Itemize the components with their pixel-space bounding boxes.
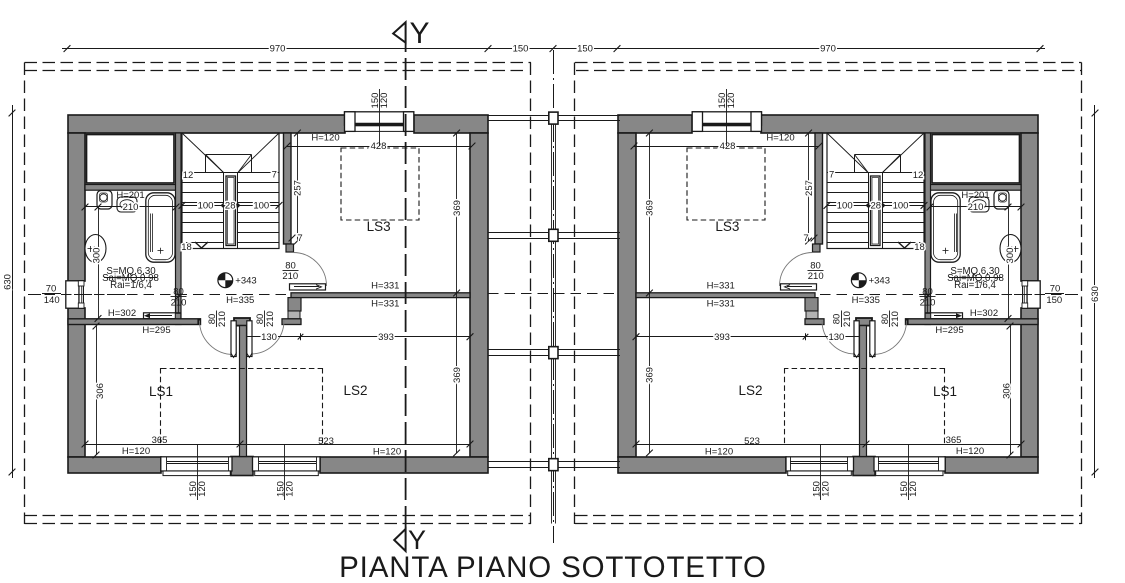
svg-text:80: 80 xyxy=(810,261,821,272)
svg-text:H=295: H=295 xyxy=(935,325,963,336)
svg-text:130: 130 xyxy=(261,332,277,343)
svg-text:523: 523 xyxy=(744,436,760,447)
svg-text:LS3: LS3 xyxy=(715,219,739,234)
svg-text:H=335: H=335 xyxy=(226,295,254,306)
svg-text:365: 365 xyxy=(946,435,962,446)
svg-text:H=331: H=331 xyxy=(371,281,399,292)
svg-text:210: 210 xyxy=(968,202,984,213)
svg-text:120: 120 xyxy=(726,93,737,109)
svg-text:393: 393 xyxy=(378,332,394,343)
svg-text:H=302: H=302 xyxy=(970,308,998,319)
svg-text:210: 210 xyxy=(217,311,228,327)
svg-text:+343: +343 xyxy=(869,275,890,286)
svg-text:120: 120 xyxy=(197,481,208,497)
svg-text:H=120: H=120 xyxy=(956,446,984,457)
svg-text:H=331: H=331 xyxy=(707,281,735,292)
svg-text:7: 7 xyxy=(297,233,302,244)
svg-text:369: 369 xyxy=(452,367,463,383)
svg-text:H=201: H=201 xyxy=(116,190,144,201)
svg-text:428: 428 xyxy=(371,141,387,152)
svg-text:7: 7 xyxy=(803,233,808,244)
svg-text:369: 369 xyxy=(645,200,656,216)
svg-text:100: 100 xyxy=(893,201,909,212)
svg-text:28: 28 xyxy=(871,201,882,212)
svg-text:H=331: H=331 xyxy=(371,299,399,310)
svg-text:H=302: H=302 xyxy=(108,308,136,319)
svg-text:100: 100 xyxy=(837,201,853,212)
svg-text:630: 630 xyxy=(1090,286,1101,302)
svg-text:H=335: H=335 xyxy=(852,295,880,306)
svg-text:70: 70 xyxy=(1050,284,1061,295)
svg-text:+343: +343 xyxy=(235,275,256,286)
svg-text:300: 300 xyxy=(91,248,102,264)
svg-text:80: 80 xyxy=(285,261,296,272)
svg-text:306: 306 xyxy=(1002,383,1013,399)
svg-text:H=331: H=331 xyxy=(707,299,735,310)
svg-text:393: 393 xyxy=(714,332,730,343)
svg-text:428: 428 xyxy=(720,141,736,152)
svg-text:LS2: LS2 xyxy=(738,383,762,398)
svg-text:210: 210 xyxy=(808,271,824,282)
svg-text:257: 257 xyxy=(804,180,815,196)
svg-text:369: 369 xyxy=(645,367,656,383)
svg-text:7: 7 xyxy=(272,169,277,180)
svg-text:12: 12 xyxy=(183,170,194,181)
svg-text:120: 120 xyxy=(821,481,832,497)
svg-text:H=201: H=201 xyxy=(961,190,989,201)
svg-text:28: 28 xyxy=(225,201,236,212)
svg-text:LS1: LS1 xyxy=(933,384,957,399)
svg-text:150: 150 xyxy=(1046,295,1062,306)
svg-text:7: 7 xyxy=(829,169,834,180)
svg-text:Rai=1/6,4: Rai=1/6,4 xyxy=(954,280,996,291)
svg-text:150: 150 xyxy=(513,44,529,55)
svg-text:LS1: LS1 xyxy=(149,384,173,399)
svg-text:970: 970 xyxy=(270,44,286,55)
svg-text:130: 130 xyxy=(828,332,844,343)
svg-text:H=120: H=120 xyxy=(766,132,794,143)
svg-text:H=295: H=295 xyxy=(142,325,170,336)
svg-text:LS3: LS3 xyxy=(367,219,391,234)
svg-text:210: 210 xyxy=(123,202,139,213)
svg-text:306: 306 xyxy=(95,383,106,399)
svg-text:H=120: H=120 xyxy=(311,132,339,143)
svg-text:523: 523 xyxy=(318,436,334,447)
svg-text:H=120: H=120 xyxy=(122,446,150,457)
svg-text:630: 630 xyxy=(2,274,13,290)
svg-text:210: 210 xyxy=(842,311,853,327)
svg-text:Y: Y xyxy=(409,17,429,50)
svg-text:120: 120 xyxy=(908,481,919,497)
svg-text:369: 369 xyxy=(452,200,463,216)
svg-text:970: 970 xyxy=(820,44,836,55)
svg-text:300: 300 xyxy=(1005,248,1016,264)
svg-text:140: 140 xyxy=(44,295,60,306)
svg-text:Rai=1/6,4: Rai=1/6,4 xyxy=(110,280,152,291)
svg-text:210: 210 xyxy=(890,311,901,327)
svg-text:365: 365 xyxy=(152,435,168,446)
svg-text:LS2: LS2 xyxy=(343,383,367,398)
svg-text:120: 120 xyxy=(285,481,296,497)
svg-text:70: 70 xyxy=(46,284,57,295)
svg-text:18: 18 xyxy=(914,242,925,253)
svg-text:150: 150 xyxy=(577,44,593,55)
svg-text:12: 12 xyxy=(913,170,924,181)
svg-text:H=120: H=120 xyxy=(705,447,733,458)
svg-text:100: 100 xyxy=(253,201,269,212)
svg-text:210: 210 xyxy=(282,271,298,282)
svg-text:H=120: H=120 xyxy=(373,447,401,458)
svg-text:18: 18 xyxy=(181,242,192,253)
svg-text:120: 120 xyxy=(379,93,390,109)
svg-text:PIANTA PIANO SOTTOTETTO: PIANTA PIANO SOTTOTETTO xyxy=(339,551,767,583)
svg-text:257: 257 xyxy=(293,180,304,196)
svg-text:100: 100 xyxy=(198,201,214,212)
svg-text:210: 210 xyxy=(265,311,276,327)
